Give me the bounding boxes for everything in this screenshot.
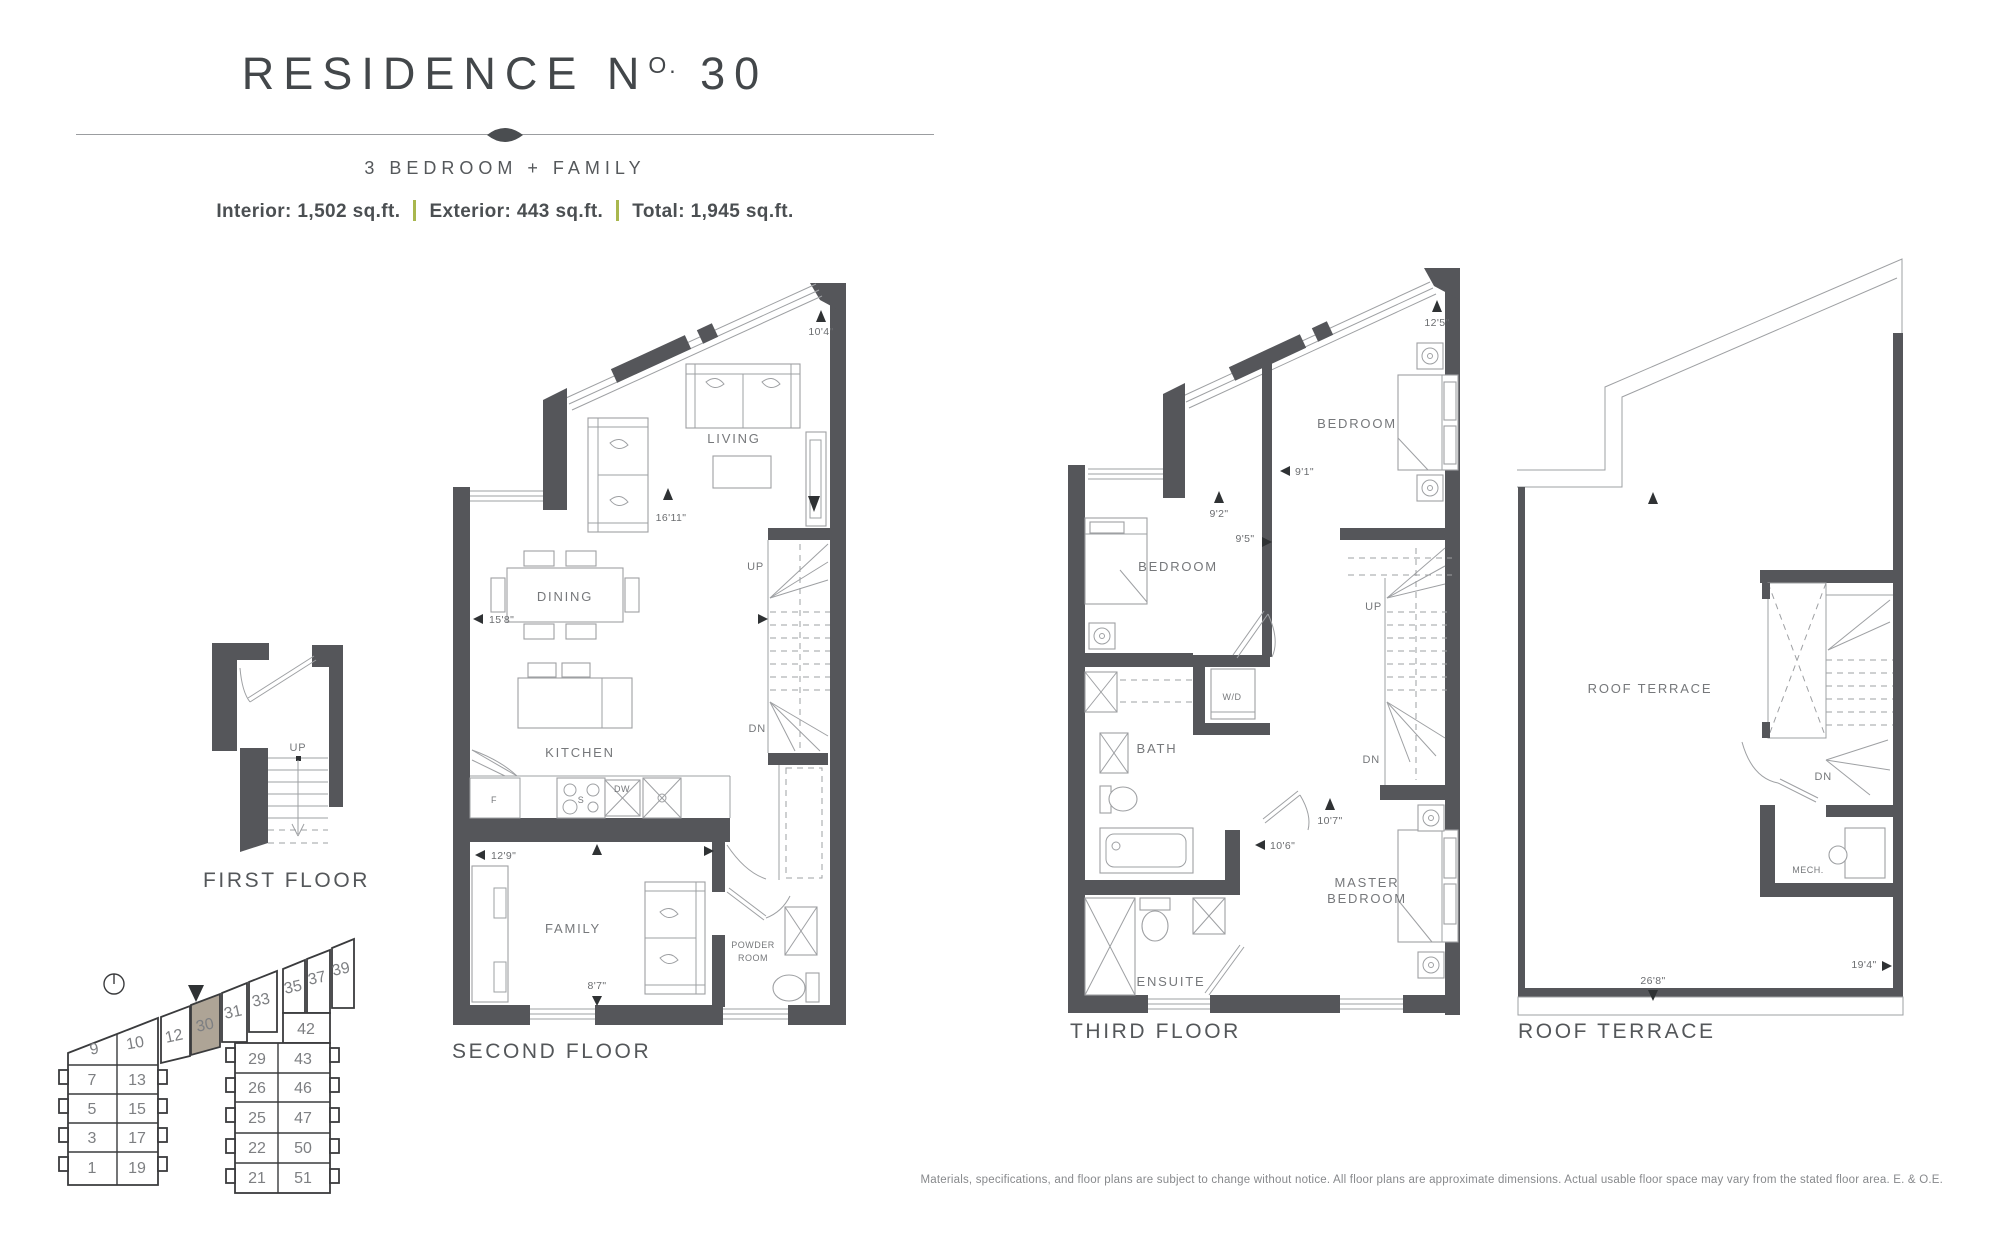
unit-label: 29 <box>248 1051 266 1068</box>
roof-terrace-label: ROOF TERRACE <box>1588 681 1713 696</box>
laundry-label: W/D <box>1223 692 1242 702</box>
master-label-1: MASTER <box>1335 875 1400 890</box>
roof-terrace-caption: ROOF TERRACE <box>1518 1020 1716 1043</box>
stairs-down-label: DN <box>1363 754 1381 766</box>
stairs-down-label: DN <box>1815 771 1833 783</box>
second-floor-caption: SECOND FLOOR <box>452 1040 651 1063</box>
stove-label: S <box>578 795 585 805</box>
mech-label: MECH. <box>1792 865 1824 875</box>
kitchen-counter: F S DW <box>470 750 730 818</box>
unit-label: 5 <box>88 1101 97 1118</box>
living-label: LIVING <box>707 431 760 446</box>
hall-door-arc <box>727 845 766 879</box>
kitchen-label: KITCHEN <box>545 745 615 760</box>
disclaimer: Materials, specifications, and floor pla… <box>920 1174 1943 1186</box>
unit-label: 15 <box>128 1101 146 1118</box>
unit-label: 30 <box>195 1015 216 1035</box>
floorplan-canvas: UP FIRST FLOOR <box>0 0 2000 1250</box>
keyplan: 9 10 12 30 31 33 35 37 39 42 29 43 26 46… <box>59 939 354 1193</box>
svg-text:9'5": 9'5" <box>1235 533 1254 545</box>
unit-label: 51 <box>294 1170 312 1187</box>
kitchen-island <box>518 663 632 728</box>
window-strip-left <box>1088 469 1163 479</box>
master-label-2: BEDROOM <box>1327 891 1407 906</box>
fridge-label: F <box>491 795 497 805</box>
unit-label: 43 <box>294 1051 312 1068</box>
bedroom3-furniture <box>1085 518 1192 712</box>
first-floor-stairs: UP <box>268 742 328 843</box>
unit-label: 35 <box>283 977 304 997</box>
entry-door <box>240 656 316 702</box>
first-floor-caption: FIRST FLOOR <box>203 869 370 892</box>
unit-label: 19 <box>128 1160 146 1177</box>
dishwasher-label: DW <box>614 784 630 794</box>
stairs-up-label: UP <box>1365 601 1382 613</box>
unit-label: 3 <box>88 1130 97 1147</box>
ensuite-label: ENSUITE <box>1137 974 1206 989</box>
svg-text:8'7": 8'7" <box>587 980 606 992</box>
coffee-table <box>713 456 771 488</box>
living-sofa <box>686 364 800 428</box>
svg-text:9'2": 9'2" <box>1209 508 1228 520</box>
svg-text:9'1": 9'1" <box>1295 466 1314 478</box>
svg-text:15'8": 15'8" <box>489 614 514 626</box>
powder-label-1: POWDER <box>731 940 775 950</box>
unit-label: 22 <box>248 1140 266 1157</box>
unit-label: 12 <box>164 1026 185 1046</box>
svg-text:12'5": 12'5" <box>1424 317 1449 329</box>
living-sofa-2 <box>588 418 648 532</box>
bedroom2-label: BEDROOM <box>1317 416 1397 431</box>
roof-terrace-plan: DN MECH. ROOF TERRACE 26'8" 19'4" ROOF T… <box>1517 259 1903 1043</box>
svg-text:19'4": 19'4" <box>1851 959 1876 971</box>
first-floor-plan: UP FIRST FLOOR <box>203 643 370 892</box>
bath-label: BATH <box>1137 741 1178 756</box>
unit-label: 47 <box>294 1110 312 1127</box>
tv-niche <box>806 432 826 526</box>
family-sofa <box>645 882 705 994</box>
unit-label: 10 <box>125 1034 146 1054</box>
roof-stairs: DN <box>1742 570 1903 817</box>
unit-label: 1 <box>88 1160 97 1177</box>
dining-label: DINING <box>537 589 593 604</box>
second-floor-plan: LIVING DINING KITCHEN F <box>452 283 846 1063</box>
unit-label: 21 <box>248 1170 266 1187</box>
unit-label: 37 <box>307 968 328 988</box>
unit-label: 46 <box>294 1080 312 1097</box>
media-unit <box>472 866 508 1002</box>
svg-text:10'6": 10'6" <box>1270 840 1295 852</box>
laundry-closet: W/D <box>1211 669 1255 719</box>
third-floor-caption: THIRD FLOOR <box>1070 1020 1241 1043</box>
powder-room: POWDER ROOM <box>727 888 819 1002</box>
stairs-up-label: UP <box>747 561 764 573</box>
stairs-up-label: UP <box>290 742 307 754</box>
svg-text:26'8": 26'8" <box>1640 975 1665 987</box>
north-indicator-icon <box>104 974 124 994</box>
mech-room: MECH. <box>1760 805 1893 897</box>
second-floor-stairs: UP DN <box>747 544 830 751</box>
third-floor-stairs: UP DN <box>1363 548 1448 785</box>
svg-text:10'7": 10'7" <box>1317 815 1342 827</box>
family-label: FAMILY <box>545 921 601 936</box>
unit-label: 31 <box>223 1002 244 1022</box>
window-strip-left <box>470 491 543 501</box>
unit-label: 39 <box>331 959 352 979</box>
unit-label: 33 <box>251 990 272 1010</box>
third-floor-plan: BEDROOM BEDROOM W/D <box>1068 268 1460 1043</box>
unit-label: 42 <box>297 1021 315 1038</box>
unit-label: 50 <box>294 1140 312 1157</box>
unit-label: 26 <box>248 1080 266 1097</box>
unit-label: 17 <box>128 1130 146 1147</box>
svg-text:16'11": 16'11" <box>656 512 687 524</box>
unit-label: 25 <box>248 1110 266 1127</box>
unit-label: 13 <box>128 1072 146 1089</box>
unit-label: 7 <box>88 1072 97 1089</box>
powder-label-2: ROOM <box>738 953 768 963</box>
bedroom3-label: BEDROOM <box>1138 559 1218 574</box>
stairs-down-label: DN <box>749 723 767 735</box>
unit-marker-icon <box>188 985 204 1002</box>
svg-text:12'9": 12'9" <box>491 850 516 862</box>
svg-text:10'4": 10'4" <box>808 326 833 338</box>
